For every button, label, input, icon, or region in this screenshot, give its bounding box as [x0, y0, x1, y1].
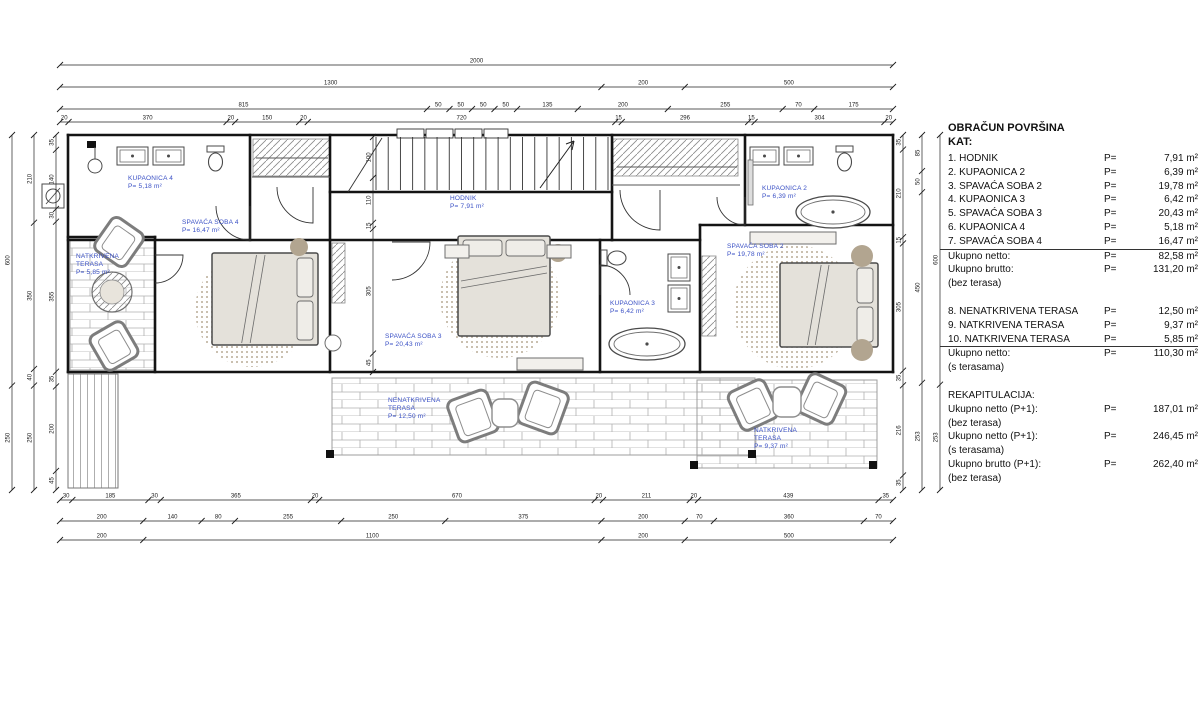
- dimension-label: 355: [50, 291, 56, 302]
- legend-row: 8. NENATKRIVENA TERASAP=12,50 m²: [948, 305, 1198, 319]
- window-icon: [484, 129, 508, 138]
- room-label: SPAVAĆA SOBA 4P= 16,47 m²: [182, 217, 239, 234]
- room-label: KUPAONICA 4P= 5,18 m²: [128, 175, 173, 190]
- dimension-label: 253: [934, 432, 940, 443]
- legend-row: [948, 375, 1198, 389]
- tub-drain: [831, 210, 834, 213]
- planter-icon: [851, 245, 873, 267]
- dimension-label: 250: [6, 432, 12, 443]
- toilet-tank: [601, 250, 607, 266]
- dimension-label: 15: [615, 116, 622, 122]
- legend-row-p: P=: [1104, 319, 1136, 333]
- dimension-label: 50: [457, 103, 464, 109]
- dimension-label: 305: [367, 286, 373, 297]
- legend-row-label: Ukupno brutto:: [948, 263, 1104, 277]
- legend-row: Ukupno netto (P+1):P=246,45 m²: [948, 430, 1198, 444]
- dimension-label: 250: [388, 515, 399, 521]
- legend-row: 2. KUPAONICA 2P=6,39 m²: [948, 166, 1198, 180]
- legend-title: OBRAČUN POVRŠINA: [948, 121, 1198, 135]
- dimension-label: 150: [262, 116, 273, 122]
- sink-icon: [117, 147, 148, 165]
- dimension-label: 100: [367, 152, 373, 163]
- dimension-label: 35: [897, 374, 903, 381]
- legend-row-p: P=: [1104, 193, 1136, 207]
- dimension-label: 200: [97, 515, 108, 521]
- legend-row: (bez terasa): [948, 277, 1198, 291]
- legend-row-p: P=: [1104, 250, 1136, 264]
- legend-row-label: 2. KUPAONICA 2: [948, 166, 1104, 180]
- legend-row-p: P=: [1104, 458, 1136, 472]
- legend-row-label: 1. HODNIK: [948, 152, 1104, 166]
- sink-drain: [763, 155, 766, 158]
- toilet-tank: [836, 146, 853, 152]
- legend-row-label: Ukupno netto (P+1):: [948, 430, 1104, 444]
- sink-drain: [167, 155, 170, 158]
- dimension-label: 50: [480, 103, 487, 109]
- legend-subtitle: KAT:: [948, 135, 1198, 149]
- dimension-label: 500: [784, 534, 795, 540]
- legend-row-label: Ukupno brutto (P+1):: [948, 458, 1104, 472]
- dimension-label: 110: [367, 195, 373, 205]
- legend-row-value: 5,85 m²: [1136, 333, 1198, 347]
- nightstand-icon: [517, 358, 583, 370]
- room-label: KUPAONICA 2P= 6,39 m²: [762, 185, 807, 200]
- area-legend: OBRAČUN POVRŠINA KAT: 1. HODNIKP=7,91 m²…: [948, 121, 1198, 486]
- sink-drain: [678, 297, 681, 300]
- legend-row-p: P=: [1104, 305, 1136, 319]
- dimension-label: 15: [897, 236, 903, 243]
- legend-row-label: Ukupno netto:: [948, 347, 1104, 361]
- dimension-label: 296: [680, 116, 691, 122]
- dimension-label: 2000: [470, 59, 484, 65]
- legend-rows: 1. HODNIKP=7,91 m²2. KUPAONICA 2P=6,39 m…: [948, 152, 1198, 486]
- dimension-label: 20: [596, 494, 603, 500]
- lamp-icon: [88, 159, 102, 173]
- legend-row-label: (s terasama): [948, 444, 1104, 458]
- legend-row-p: [1104, 472, 1136, 486]
- ground-hatch: [68, 374, 118, 488]
- sink-icon: [750, 147, 779, 165]
- legend-row: 3. SPAVAĆA SOBA 2P=19,78 m²: [948, 180, 1198, 194]
- dimension-label: 45: [50, 476, 56, 483]
- dimension-label: 15: [367, 222, 373, 229]
- legend-row-label: (bez terasa): [948, 277, 1104, 291]
- dimension-label: 200: [638, 81, 649, 87]
- window-icon: [397, 129, 424, 138]
- legend-row-p: [1104, 361, 1136, 375]
- side-table-icon: [773, 387, 801, 417]
- bed-icon: [212, 253, 318, 345]
- dimension-label: 175: [849, 103, 860, 109]
- dimension-label: 210: [897, 188, 903, 199]
- dimension-label: 210: [28, 173, 34, 184]
- legend-row-value: 262,40 m²: [1136, 458, 1198, 472]
- dimension-label: 30: [50, 211, 56, 218]
- legend-row-label: 6. KUPAONICA 4: [948, 221, 1104, 235]
- column-post: [87, 141, 96, 148]
- dimension-label: 600: [934, 254, 940, 265]
- dimension-label: 720: [457, 116, 468, 122]
- dimension-label: 250: [28, 432, 34, 443]
- dimension-label: 50: [916, 178, 922, 185]
- dimension-label: 20: [312, 494, 319, 500]
- dimension-label: 20: [300, 116, 307, 122]
- legend-row: Ukupno netto:P=110,30 m²: [948, 347, 1198, 361]
- legend-row-value: 19,78 m²: [1136, 180, 1198, 194]
- dimension-label: 305: [897, 301, 903, 312]
- legend-row-value: 20,43 m²: [1136, 207, 1198, 221]
- dimension-label: 439: [783, 494, 794, 500]
- legend-row-label: 9. NATKRIVENA TERASA: [948, 319, 1104, 333]
- round-table-icon: [92, 272, 132, 312]
- legend-row-label: Ukupno netto:: [948, 250, 1104, 264]
- sink-icon: [784, 147, 813, 165]
- dimension-label: 80: [215, 515, 222, 521]
- legend-row-value: 246,45 m²: [1136, 430, 1198, 444]
- legend-row-p: P=: [1104, 430, 1136, 444]
- tub-drain: [645, 342, 648, 345]
- legend-row: (bez terasa): [948, 417, 1198, 431]
- legend-row: Ukupno netto (P+1):P=187,01 m²: [948, 403, 1198, 417]
- legend-row-p: P=: [1104, 180, 1136, 194]
- legend-row-p: P=: [1104, 333, 1136, 347]
- dimension-label: 85: [916, 149, 922, 156]
- sink-icon: [153, 147, 184, 165]
- legend-row: 1. HODNIKP=7,91 m²: [948, 152, 1198, 166]
- wardrobe-icon: [613, 139, 738, 176]
- dimension-label: 600: [6, 255, 12, 266]
- dimension-label: 200: [50, 423, 56, 434]
- pillow: [506, 240, 545, 256]
- column-post: [326, 450, 334, 458]
- bed-icon: [780, 263, 878, 347]
- pillow: [857, 307, 873, 342]
- legend-row-p: P=: [1104, 221, 1136, 235]
- legend-row: (s terasama): [948, 361, 1198, 375]
- wardrobe-icon: [332, 243, 345, 303]
- dimension-label: 70: [875, 515, 882, 521]
- dimension-label: 35: [897, 479, 903, 486]
- legend-row-value: [1136, 361, 1198, 375]
- legend-row-label: 4. KUPAONICA 3: [948, 193, 1104, 207]
- column-post: [690, 461, 698, 469]
- legend-row-p: [1104, 417, 1136, 431]
- sink-drain: [678, 266, 681, 269]
- table-top: [100, 280, 124, 304]
- dimension-label: 304: [815, 116, 826, 122]
- room-label: SPAVAĆA SOBA 3P= 20,43 m²: [385, 331, 442, 348]
- legend-row-value: [1136, 277, 1198, 291]
- legend-row: 5. SPAVAĆA SOBA 3P=20,43 m²: [948, 207, 1198, 221]
- dimension-label: 35: [50, 138, 56, 145]
- dimension-label: 35: [882, 494, 889, 500]
- nightstand-icon: [445, 245, 469, 258]
- dimension-label: 211: [642, 494, 652, 500]
- floor-plan-content: KUPAONICA 4P= 5,18 m²SPAVAĆA SOBA 4P= 16…: [6, 59, 944, 544]
- dimension-label: 500: [784, 81, 795, 87]
- dimension-label: 70: [696, 515, 703, 521]
- legend-row-label: 3. SPAVAĆA SOBA 2: [948, 180, 1104, 194]
- dimension-label: 200: [618, 103, 629, 109]
- legend-row-value: [1136, 472, 1198, 486]
- legend-row-value: 9,37 m²: [1136, 319, 1198, 333]
- toilet-bowl: [209, 153, 223, 171]
- legend-row-label: REKAPITULACIJA:: [948, 389, 1104, 403]
- dimension-label: 30: [63, 494, 70, 500]
- toilet-tank: [207, 146, 224, 152]
- legend-row-label: Ukupno netto (P+1):: [948, 403, 1104, 417]
- legend-row-label: 10. NATKRIVENA TERASA: [948, 333, 1104, 347]
- wardrobe-icon: [702, 256, 716, 336]
- legend-row-value: 16,47 m²: [1136, 235, 1198, 249]
- legend-row: [948, 291, 1198, 305]
- legend-row-value: 5,18 m²: [1136, 221, 1198, 235]
- toilet-bowl: [838, 153, 852, 171]
- legend-row-p: P=: [1104, 207, 1136, 221]
- dimension-label: 200: [638, 534, 649, 540]
- column-post: [869, 461, 877, 469]
- dimension-label: 670: [452, 494, 463, 500]
- dimension-label: 35: [897, 138, 903, 145]
- dimension-label: 50: [435, 103, 442, 109]
- legend-row-value: [1136, 389, 1198, 403]
- legend-row-label: (bez terasa): [948, 417, 1104, 431]
- legend-row: Ukupno netto:P=82,58 m²: [948, 250, 1198, 264]
- dimension-label: 216: [897, 425, 903, 436]
- door-swing-icon: [155, 255, 183, 283]
- dimension-label: 253: [916, 431, 922, 442]
- legend-row: 4. KUPAONICA 3P=6,42 m²: [948, 193, 1198, 207]
- legend-row-p: P=: [1104, 235, 1136, 249]
- legend-row-p: [1104, 389, 1136, 403]
- door-swing-icon: [620, 190, 660, 230]
- dimension-label: 1300: [324, 81, 338, 87]
- legend-row-value: 7,91 m²: [1136, 152, 1198, 166]
- side-table-icon: [492, 399, 518, 427]
- planter-icon: [851, 339, 873, 361]
- door-swing-icon: [277, 187, 313, 223]
- sink-icon: [668, 254, 690, 281]
- bathtub-icon: [609, 328, 685, 360]
- dimension-label: 140: [50, 174, 56, 185]
- dimension-label: 255: [283, 515, 294, 521]
- dimension-label: 15: [748, 116, 755, 122]
- nightstand-icon: [547, 245, 571, 258]
- pillow: [857, 268, 873, 303]
- toilet-icon: [836, 146, 853, 171]
- legend-row-value: 6,42 m²: [1136, 193, 1198, 207]
- dimension-label: 450: [916, 282, 922, 293]
- pillow: [297, 301, 313, 340]
- sink-icon: [668, 285, 690, 312]
- toilet-icon: [601, 250, 626, 266]
- legend-row: (s terasama): [948, 444, 1198, 458]
- stair-direction-arrow: [540, 141, 574, 188]
- dimension-label: 20: [691, 494, 698, 500]
- dimension-label: 20: [885, 116, 892, 122]
- legend-row: Ukupno brutto:P=131,20 m²: [948, 263, 1198, 277]
- door-swing-icon: [392, 242, 430, 280]
- dimension-label: 1100: [366, 534, 380, 540]
- dimension-label: 370: [143, 116, 154, 122]
- legend-row-p: [1104, 277, 1136, 291]
- dimension-label: 815: [238, 103, 249, 109]
- dimension-label: 50: [502, 103, 509, 109]
- toilet-icon: [207, 146, 224, 171]
- dimension-label: 20: [228, 116, 235, 122]
- legend-row-value: 110,30 m²: [1136, 347, 1198, 361]
- legend-row: (bez terasa): [948, 472, 1198, 486]
- planter-icon: [290, 238, 308, 256]
- dimension-label: 40: [28, 373, 34, 380]
- legend-row-p: [1104, 444, 1136, 458]
- legend-row: REKAPITULACIJA:: [948, 389, 1198, 403]
- dimension-label: 30: [151, 494, 158, 500]
- dimension-label: 45: [367, 359, 373, 366]
- dimension-label: 350: [28, 290, 34, 301]
- bed-icon: [458, 236, 550, 336]
- legend-row-value: 82,58 m²: [1136, 250, 1198, 264]
- legend-row-label: 8. NENATKRIVENA TERASA: [948, 305, 1104, 319]
- legend-row-p: P=: [1104, 263, 1136, 277]
- legend-row-value: 187,01 m²: [1136, 403, 1198, 417]
- legend-row-p: P=: [1104, 166, 1136, 180]
- dimension-label: 20: [61, 116, 68, 122]
- legend-row-label: 5. SPAVAĆA SOBA 3: [948, 207, 1104, 221]
- legend-row-value: [1136, 444, 1198, 458]
- window-icon: [426, 129, 453, 138]
- legend-row: 9. NATKRIVENA TERASAP=9,37 m²: [948, 319, 1198, 333]
- dimension-label: 70: [795, 103, 802, 109]
- legend-row-value: 12,50 m²: [1136, 305, 1198, 319]
- sink-drain: [797, 155, 800, 158]
- legend-row-label: (bez terasa): [948, 472, 1104, 486]
- legend-row: Ukupno brutto (P+1):P=262,40 m²: [948, 458, 1198, 472]
- dimension-label: 200: [97, 534, 108, 540]
- door-swing-icon: [717, 197, 745, 225]
- legend-row-label: 7. SPAVAĆA SOBA 4: [948, 235, 1104, 249]
- room-label: HODNIKP= 7,91 m²: [450, 195, 485, 210]
- door-swing-icon: [600, 265, 630, 295]
- legend-row-value: 6,39 m²: [1136, 166, 1198, 180]
- radiator-icon: [748, 160, 753, 205]
- dimension-label: 135: [542, 103, 553, 109]
- room-label: KUPAONICA 3P= 6,42 m²: [610, 300, 655, 315]
- window-icon: [455, 129, 482, 138]
- legend-row-label: (s terasama): [948, 361, 1104, 375]
- dimension-label: 35: [50, 375, 56, 382]
- dimension-label: 360: [784, 515, 795, 521]
- dimension-label: 200: [638, 515, 649, 521]
- legend-row: 6. KUPAONICA 4P=5,18 m²: [948, 221, 1198, 235]
- legend-row-p: P=: [1104, 347, 1136, 361]
- legend-row: 7. SPAVAĆA SOBA 4P=16,47 m²: [940, 235, 1198, 250]
- legend-row-p: P=: [1104, 152, 1136, 166]
- dimension-label: 375: [518, 515, 529, 521]
- dimension-label: 365: [231, 494, 242, 500]
- sink-drain: [131, 155, 134, 158]
- blueprint-page: KUPAONICA 4P= 5,18 m²SPAVAĆA SOBA 4P= 16…: [0, 0, 1200, 722]
- stool-icon: [325, 335, 341, 351]
- pillow: [297, 258, 313, 297]
- toilet-bowl: [608, 251, 626, 265]
- bathtub-icon: [796, 196, 870, 228]
- legend-row: 10. NATKRIVENA TERASAP=5,85 m²: [940, 333, 1198, 348]
- dimension-label: 140: [167, 515, 178, 521]
- column-post: [748, 450, 756, 458]
- stair-break-line: [348, 138, 382, 192]
- legend-row-value: 131,20 m²: [1136, 263, 1198, 277]
- dimension-label: 255: [720, 103, 731, 109]
- dimension-label: 185: [105, 494, 116, 500]
- legend-row-value: [1136, 417, 1198, 431]
- legend-row-p: P=: [1104, 403, 1136, 417]
